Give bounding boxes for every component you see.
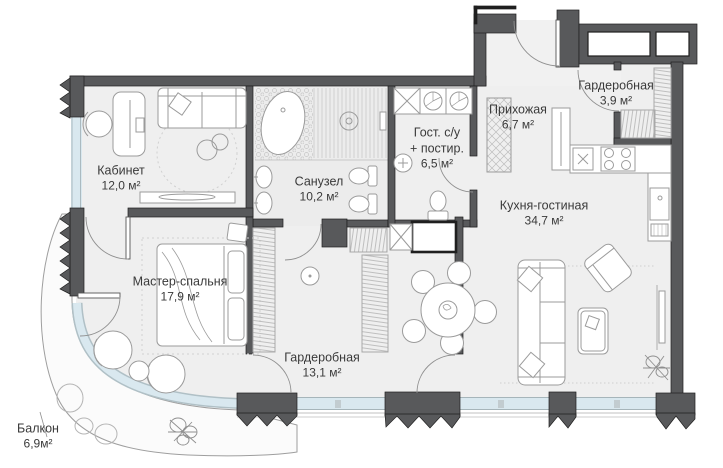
hatch-left-top [60, 78, 70, 118]
room-area: 13,1 м² [284, 365, 360, 380]
room-name: Мастер-спальня [133, 273, 228, 289]
room-label-hallway: Прихожая 6,7 м² [489, 101, 547, 132]
wc-toilet [428, 191, 448, 220]
room-label-guest-wc: Гост. с/у + постир. 6,5 м² [410, 124, 464, 171]
sink-2 [256, 192, 272, 214]
room-name: Гардеробная [578, 77, 654, 93]
lounge-chair [94, 331, 132, 369]
side-table [129, 361, 149, 381]
room-name: Кабинет [97, 162, 145, 178]
sink-1 [256, 166, 272, 188]
room-label-kitchen-living: Кухня-гостиная 34,7 м² [500, 197, 588, 228]
room-label-balcony: Балкон 6,9м² [17, 420, 59, 451]
room-name: Балкон [17, 420, 59, 436]
bidet [349, 194, 377, 214]
shower-head [380, 112, 386, 130]
room-area: 6,5 м² [410, 156, 464, 171]
balcony-door-leaf [78, 293, 120, 298]
room-name: Кухня-гостиная [500, 197, 588, 213]
room-area: 34,7 м² [500, 213, 588, 228]
room-area: 10,2 м² [295, 189, 344, 204]
room-name-line2: + постир. [410, 140, 464, 156]
floor-plan-drawing [0, 0, 723, 468]
room-area: 6,7 м² [489, 117, 547, 132]
shaft-block [322, 219, 347, 247]
nightstand [227, 223, 248, 242]
room-label-office: Кабинет 12,0 м² [97, 162, 145, 193]
toilet [349, 166, 377, 186]
coffee-table [578, 308, 608, 354]
room-area: 6,9м² [17, 436, 59, 451]
room-area: 3,9 м² [578, 93, 654, 108]
pillow [228, 251, 244, 293]
chair [474, 301, 497, 324]
bedroom-door-leaf [126, 217, 130, 259]
room-label-master-bedroom: Мастер-спальня 17,9 м² [133, 273, 228, 304]
room-name: Гардеробная [284, 349, 360, 365]
room-name: Гост. с/у [410, 124, 464, 140]
floor-plan: Кабинет 12,0 м² Санузел 10,2 м² Гост. с/… [0, 0, 723, 468]
room-name: Прихожая [489, 101, 547, 117]
chair [403, 320, 426, 343]
room-label-wardrobe-small: Гардеробная 3,9 м² [578, 77, 654, 108]
chair [448, 262, 471, 285]
room-label-wardrobe-large: Гардеробная 13,1 м² [284, 349, 360, 380]
office-chair [86, 111, 112, 137]
room-name: Санузел [295, 173, 344, 189]
pillow [228, 298, 244, 340]
tv [659, 291, 665, 343]
entry-door-leaf [556, 20, 560, 67]
room-area: 12,0 м² [97, 178, 145, 193]
fridge [650, 188, 669, 220]
room-label-bathroom: Санузел 10,2 м² [295, 173, 344, 204]
room-area: 17,9 м² [133, 289, 228, 304]
duct-shaft [412, 222, 456, 252]
